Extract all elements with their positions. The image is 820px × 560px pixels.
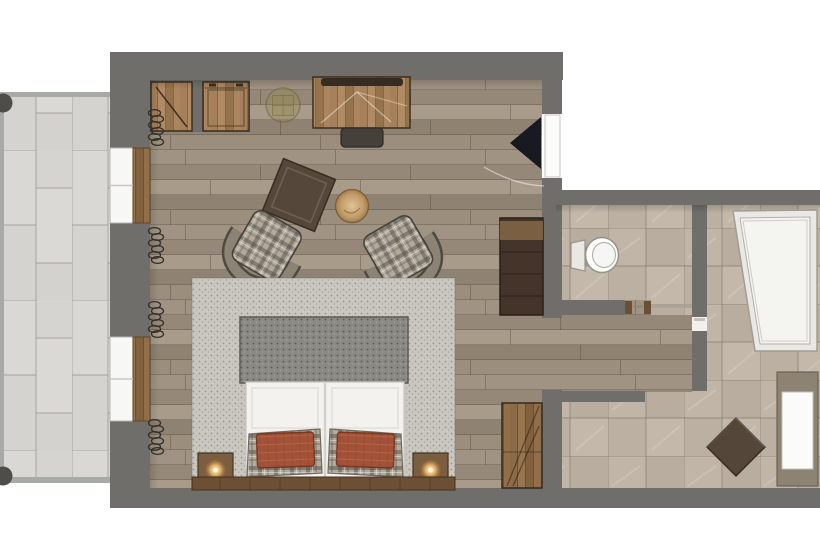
hallway-floor	[542, 315, 692, 392]
headboard	[192, 477, 455, 490]
balcony-tiles	[4, 97, 112, 477]
wall-left-lower	[110, 421, 150, 490]
side-table	[336, 190, 369, 223]
desk	[313, 77, 410, 128]
ceiling-light-icon	[266, 88, 300, 122]
cabinet	[203, 82, 249, 131]
window-top	[110, 148, 150, 223]
window-bottom	[110, 337, 150, 421]
wall-left-upper	[110, 52, 150, 148]
entry-door-opening	[542, 114, 562, 178]
wc-door	[625, 300, 651, 315]
floorplan-svg	[0, 0, 820, 560]
pillow-right	[328, 429, 403, 477]
toilet	[571, 238, 619, 273]
desk-stool	[341, 128, 383, 147]
shower-door-tick	[694, 318, 705, 321]
wall-bathroom-top	[542, 190, 820, 205]
wall-hallway-south	[550, 391, 645, 402]
wall-top	[110, 52, 563, 80]
wall-wc-south	[556, 300, 625, 315]
pillow-left	[247, 429, 322, 477]
wall-right-upper	[542, 52, 562, 115]
wall-shower-partition	[692, 205, 707, 391]
balcony-rail-bottom	[0, 477, 112, 483]
floorplan-canvas	[0, 0, 820, 560]
vanity	[777, 372, 818, 486]
wall-right-lower	[542, 390, 562, 488]
bed-blanket	[240, 317, 408, 383]
wall-left-middle	[110, 223, 150, 337]
glass-partition-line	[651, 304, 692, 308]
balcony	[0, 92, 112, 486]
tall-cabinet	[502, 403, 542, 488]
balcony-rail-top	[0, 92, 112, 97]
dresser	[500, 218, 543, 315]
wall-bottom	[110, 488, 820, 508]
